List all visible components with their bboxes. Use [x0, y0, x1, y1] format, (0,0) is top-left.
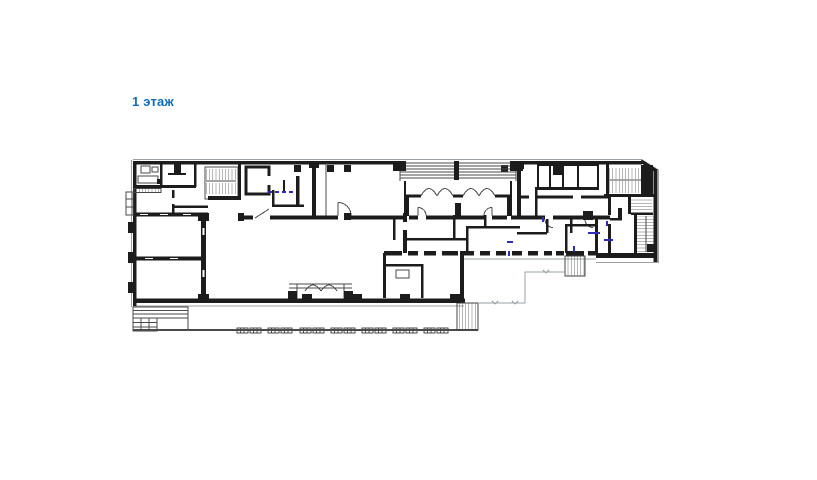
west-facade-pilasters	[126, 192, 133, 293]
northwest-rooms	[133, 161, 208, 217]
main-entrance-portico	[393, 161, 523, 216]
south-terrace	[133, 303, 478, 331]
corridor-pier-wall	[384, 251, 596, 256]
south-entrance-porch	[288, 284, 353, 300]
southeast-outside-stair	[565, 256, 585, 276]
ground-step-outline	[478, 270, 565, 304]
east-double-stairwell	[604, 163, 654, 215]
floor-plan-drawing	[0, 0, 817, 480]
blue-plan-marks	[268, 192, 613, 256]
northwest-stairwell	[205, 161, 241, 200]
west-large-rooms	[133, 213, 209, 303]
elevator-shaft	[246, 167, 271, 194]
east-long-stair	[634, 215, 655, 253]
central-rooms	[383, 213, 520, 303]
